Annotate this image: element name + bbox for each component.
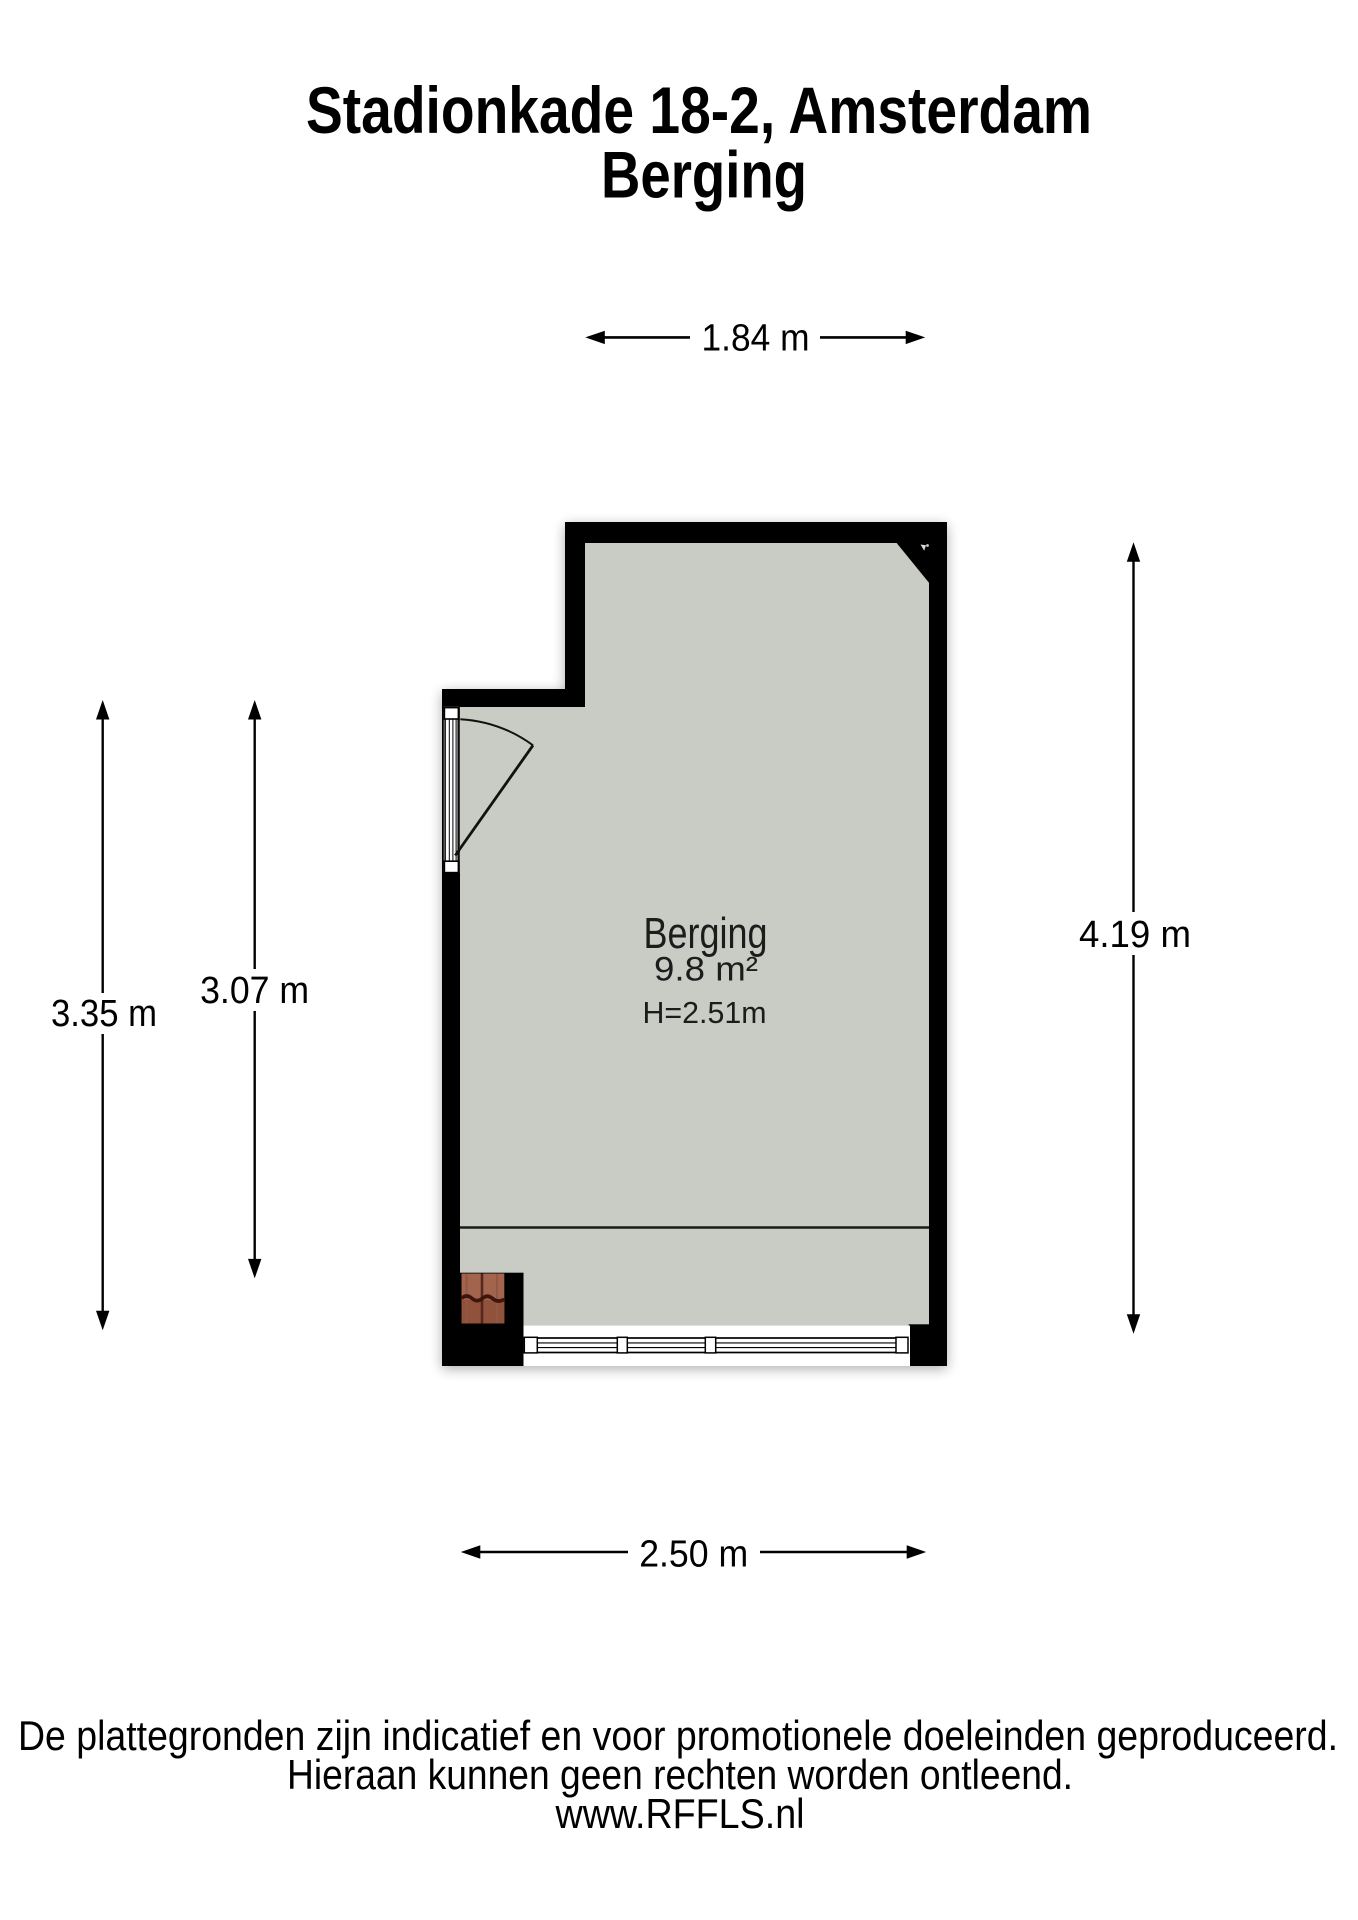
svg-text:9.8 m²: 9.8 m²	[654, 951, 758, 989]
svg-text:1.84 m: 1.84 m	[702, 317, 810, 359]
svg-text:3.07 m: 3.07 m	[200, 970, 309, 1012]
svg-text:www.RFFLS.nl: www.RFFLS.nl	[555, 1790, 805, 1837]
svg-text:3.35 m: 3.35 m	[51, 993, 157, 1035]
svg-text:Stadionkade 18-2, Amsterdam: Stadionkade 18-2, Amsterdam	[306, 73, 1092, 147]
svg-text:H=2.51m: H=2.51m	[643, 995, 767, 1030]
svg-text:4.19 m: 4.19 m	[1079, 914, 1191, 956]
svg-text:Berging: Berging	[601, 138, 807, 212]
svg-text:2.50 m: 2.50 m	[639, 1533, 748, 1575]
